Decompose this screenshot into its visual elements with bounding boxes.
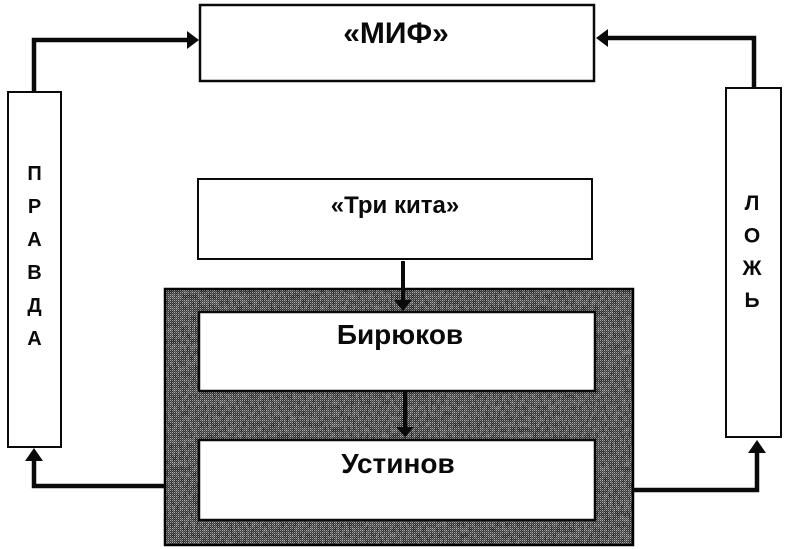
svg-text:Бирюков: Бирюков <box>337 319 463 350</box>
svg-text:«МИФ»: «МИФ» <box>343 17 449 50</box>
svg-text:О: О <box>744 225 760 248</box>
svg-text:Устинов: Устинов <box>341 448 454 479</box>
svg-text:Ь: Ь <box>744 289 759 312</box>
svg-text:«Три кита»: «Три кита» <box>331 192 459 219</box>
svg-text:Ж: Ж <box>742 257 763 280</box>
svg-text:А: А <box>27 328 41 350</box>
svg-text:В: В <box>27 262 41 284</box>
svg-text:Д: Д <box>27 295 41 317</box>
svg-text:А: А <box>27 229 41 251</box>
svg-text:П: П <box>27 163 41 185</box>
svg-text:Р: Р <box>28 196 41 218</box>
svg-text:Л: Л <box>745 192 760 215</box>
